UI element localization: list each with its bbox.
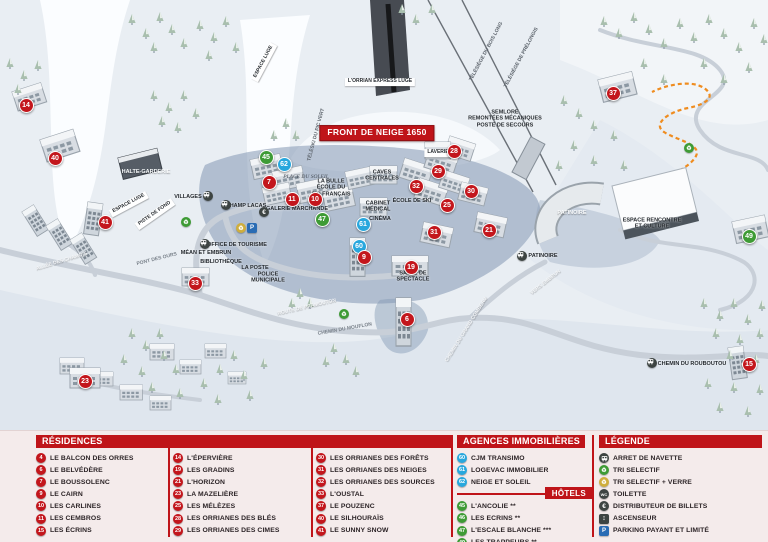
number-badge: 40 [316, 514, 326, 524]
legend-item-label: NEIGE ET SOLEIL [471, 479, 531, 486]
legend-item: 23LA MAZELIÈRE [173, 488, 279, 500]
map-marker-15: 15 [742, 357, 757, 372]
number-badge: 41 [316, 526, 326, 536]
legend-item: 30LES ORRIANES DES FORÊTS [316, 452, 435, 464]
number-badge: 47 [457, 526, 467, 536]
legend-item-label: LE CAIRN [50, 491, 83, 498]
legend-item: WCTOILETTE [599, 488, 709, 500]
legend-item-label: LE BELVÉDÈRE [50, 467, 103, 474]
legend-item: ♻TRI SELECTIF [599, 464, 709, 476]
legend-item-label: LE BOUSSOLENC [50, 479, 110, 486]
bus-icon [647, 358, 657, 368]
divider [311, 435, 313, 537]
legend-item: 19LES GRADINS [173, 464, 279, 476]
map: 1440413323745621110476132292825302131609… [0, 0, 768, 430]
legend-item: 31LES ORRIANES DES NEIGES [316, 464, 435, 476]
divider [592, 435, 594, 537]
number-badge: 61 [457, 465, 467, 475]
number-badge: 28 [173, 514, 183, 524]
map-marker-45: 45 [259, 150, 274, 165]
legend-item-label: TOILETTE [613, 491, 647, 498]
legend-item-label: L'ÉPERVIÈRE [187, 455, 233, 462]
divider [168, 435, 170, 537]
number-badge: 7 [36, 477, 46, 487]
legend-item-label: TRI SELECTIF + VERRE [613, 479, 692, 486]
legend-item-label: LES ÉCRINS [50, 527, 92, 534]
legend-item-label: LE SUNNY SNOW [330, 527, 389, 534]
legend-item-label: DISTRIBUTEUR DE BILLETS [613, 503, 707, 510]
bus-icon [599, 453, 609, 463]
legend-item: 14L'ÉPERVIÈRE [173, 452, 279, 464]
legend-item-label: LE POUZENC [330, 503, 375, 510]
toilet-icon: WC [599, 489, 609, 499]
legend-item: €DISTRIBUTEUR DE BILLETS [599, 500, 709, 512]
legend-item-label: LA MAZELIÈRE [187, 491, 238, 498]
hotels-divider: HÔTELS [457, 488, 585, 500]
legend-item-label: L'HORIZON [187, 479, 225, 486]
parking-icon: P [247, 223, 257, 233]
map-marker-32: 32 [409, 179, 424, 194]
map-marker-19: 19 [404, 260, 419, 275]
number-badge: 29 [173, 526, 183, 536]
legend-item-label: LES CARLINES [50, 503, 101, 510]
map-marker-40: 40 [48, 151, 63, 166]
map-marker-49: 49 [742, 229, 757, 244]
legend-item: 25LES MÉLÈZES [173, 500, 279, 512]
number-badge: 19 [173, 465, 183, 475]
map-marker-23: 23 [78, 374, 93, 389]
legend-item: 6LE BELVÉDÈRE [36, 464, 133, 476]
legend-item-label: L'ANCOLIE ** [471, 503, 516, 510]
legend-item-label: LOGEVAC IMMOBILIER [471, 467, 549, 474]
number-badge: 45 [457, 501, 467, 511]
map-marker-7: 7 [262, 175, 277, 190]
residences-header: RÉSIDENCES [36, 435, 451, 448]
map-marker-9: 9 [357, 250, 372, 265]
map-label: SEMLORE REMONTÉES MÉCANIQUES POSTE DE SE… [468, 110, 542, 129]
parking-icon: P [599, 526, 609, 536]
legend-item: 21L'HORIZON [173, 476, 279, 488]
legend-item-label: TRI SELECTIF [613, 467, 660, 474]
number-badge: 60 [457, 453, 467, 463]
map-label: MÉAN ET EMBRUN [181, 250, 231, 256]
agencies-list: 60CJM TRANSIMO61LOGEVAC IMMOBILIER62NEIG… [457, 452, 585, 488]
map-label: CAVES CENTRALES [365, 170, 399, 183]
legend-item-label: LE BALCON DES ORRES [50, 455, 133, 462]
number-badge: 37 [316, 501, 326, 511]
recycle-icon: ♻ [181, 217, 191, 227]
legend-item: 40LE SILHOURAÏS [316, 512, 435, 524]
legend-item: PPARKING PAYANT ET LIMITÉ [599, 525, 709, 537]
legend-item: 60CJM TRANSIMO [457, 452, 585, 464]
map-label: VILLAGES [174, 194, 202, 200]
legend-item-label: LES ORRIANES DES SOURCES [330, 479, 435, 486]
recycle-icon: ♻ [599, 465, 609, 475]
map-marker-6: 6 [400, 312, 415, 327]
map-label: PATINOIRE [528, 253, 557, 259]
map-marker-10: 10 [308, 192, 323, 207]
euro-icon: € [259, 207, 269, 217]
number-badge: 23 [173, 489, 183, 499]
legend-item: 49LES TRAPPEURS ** [457, 537, 585, 542]
map-label: CABINET MÉDICAL [365, 201, 390, 214]
number-badge: 21 [173, 477, 183, 487]
legend-item: 47L'ESCALE BLANCHE *** [457, 524, 585, 536]
legend-item: 7LE BOUSSOLENC [36, 476, 133, 488]
legend-item: 29LES ORRIANES DES CIMES [173, 525, 279, 537]
map-label: ESPACE RENCONTRE ET CULTURE [623, 218, 682, 231]
resort-map-page: 1440413323745621110476132292825302131609… [0, 0, 768, 542]
map-marker-25: 25 [440, 198, 455, 213]
legend-item: 28LES ORRIANES DES BLÉS [173, 512, 279, 524]
legend-panel: RÉSIDENCES AGENCES IMMOBILIÈRES LÉGENDE … [0, 430, 768, 542]
legend-item-label: LES ECRINS ** [471, 515, 520, 522]
bus-icon [200, 239, 210, 249]
map-marker-33: 33 [188, 276, 203, 291]
map-label: L'ORRIAN EXPRESS LUGE [345, 78, 415, 86]
map-label: POLICE MUNICIPALE [251, 272, 285, 285]
legende-list: ARRET DE NAVETTE♻TRI SELECTIF♻TRI SELECT… [599, 452, 709, 537]
number-badge: 4 [36, 453, 46, 463]
elevator-icon: ↕ [599, 514, 609, 524]
legend-item-label: CJM TRANSIMO [471, 455, 525, 462]
legend-item: 9LE CAIRN [36, 488, 133, 500]
agencies-header: AGENCES IMMOBILIÈRES [457, 435, 585, 448]
legend-item-label: L'OUSTAL [330, 491, 364, 498]
legend-item: 61LOGEVAC IMMOBILIER [457, 464, 585, 476]
map-marker-37: 37 [606, 86, 621, 101]
recycle-icon: ♻ [684, 143, 694, 153]
legend-item-label: ASCENSEUR [613, 515, 657, 522]
map-marker-29: 29 [431, 164, 446, 179]
legend-item-label: LES MÉLÈZES [187, 503, 235, 510]
legend-item-label: LES ORRIANES DES BLÉS [187, 515, 276, 522]
bus-icon [203, 191, 213, 201]
recycle-icon: ♻ [339, 309, 349, 319]
legend-item-label: L'ESCALE BLANCHE *** [471, 527, 551, 534]
euro-icon: € [599, 501, 609, 511]
legend-item-label: LES ORRIANES DES FORÊTS [330, 455, 429, 462]
bus-icon [517, 251, 527, 261]
residences-column-2: 14L'ÉPERVIÈRE19LES GRADINS21L'HORIZON23L… [173, 452, 279, 537]
legende-header: LÉGENDE [599, 435, 762, 448]
legend-item: 15LES ÉCRINS [36, 525, 133, 537]
legend-item: 37LE POUZENC [316, 500, 435, 512]
legend-item: ARRET DE NAVETTE [599, 452, 709, 464]
bus-icon [221, 200, 231, 210]
number-badge: 33 [316, 489, 326, 499]
map-label: ÉCOLE DE SKI [393, 198, 432, 204]
number-badge: 32 [316, 477, 326, 487]
legend-item: ♻TRI SELECTIF + VERRE [599, 476, 709, 488]
residences-column-3: 30LES ORRIANES DES FORÊTS31LES ORRIANES … [316, 452, 435, 537]
number-badge: 30 [316, 453, 326, 463]
legend-item: 33L'OUSTAL [316, 488, 435, 500]
residences-column-1: 4LE BALCON DES ORRES6LE BELVÉDÈRE7LE BOU… [36, 452, 133, 537]
legend-item: 4LE BALCON DES ORRES [36, 452, 133, 464]
map-label: FRONT DE NEIGE 1650 [319, 125, 434, 141]
map-marker-61: 61 [356, 217, 371, 232]
number-badge: 62 [457, 477, 467, 487]
map-label: LA POSTE [241, 265, 268, 271]
number-badge: 46 [457, 513, 467, 523]
number-badge: 25 [173, 501, 183, 511]
map-marker-41: 41 [98, 215, 113, 230]
map-label: CINÉMA [369, 216, 391, 222]
map-label: BIBLIOTHÈQUE [200, 259, 242, 265]
map-label: OFFICE DE TOURISME [207, 242, 267, 248]
map-marker-47: 47 [315, 212, 330, 227]
number-badge: 9 [36, 489, 46, 499]
legend-item: 46LES ECRINS ** [457, 512, 585, 524]
number-badge: 6 [36, 465, 46, 475]
legend-item-label: LE SILHOURAÏS [330, 515, 384, 522]
map-marker-14: 14 [19, 98, 34, 113]
map-marker-28: 28 [447, 144, 462, 159]
hotels-list: 45L'ANCOLIE **46LES ECRINS **47L'ESCALE … [457, 500, 585, 542]
legend-item-label: LES GRADINS [187, 467, 235, 474]
number-badge: 10 [36, 501, 46, 511]
legend-item-label: LES ORRIANES DES NEIGES [330, 467, 427, 474]
number-badge: 15 [36, 526, 46, 536]
legend-item: 41LE SUNNY SNOW [316, 525, 435, 537]
number-badge: 11 [36, 514, 46, 524]
legend-item-label: ARRET DE NAVETTE [613, 455, 682, 462]
map-label: CHEMIN DU ROUBOUTOU [658, 361, 727, 367]
divider [451, 435, 453, 537]
legend-item: 32LES ORRIANES DES SOURCES [316, 476, 435, 488]
hotels-header: HÔTELS [545, 487, 593, 499]
legend-item: 45L'ANCOLIE ** [457, 500, 585, 512]
legend-item-label: PARKING PAYANT ET LIMITÉ [613, 527, 709, 534]
map-marker-62: 62 [277, 157, 292, 172]
map-marker-30: 30 [464, 184, 479, 199]
number-badge: 14 [173, 453, 183, 463]
legend-item: 10LES CARLINES [36, 500, 133, 512]
number-badge: 31 [316, 465, 326, 475]
map-label: HALTE-GARDERIE [122, 169, 171, 175]
legend-item: 11LES CEMBROS [36, 512, 133, 524]
number-badge: 49 [457, 538, 467, 542]
map-label: PATINOIRE [557, 210, 586, 216]
map-label: GALERIE MARCHANDE [266, 206, 328, 212]
map-marker-31: 31 [427, 225, 442, 240]
recycle-glass-icon: ♻ [236, 223, 246, 233]
legend-item: ↕ASCENSEUR [599, 512, 709, 524]
legend-item-label: LES CEMBROS [50, 515, 101, 522]
map-marker-11: 11 [285, 192, 300, 207]
recycle-glass-icon: ♻ [599, 477, 609, 487]
legend-item-label: LES ORRIANES DES CIMES [187, 527, 279, 534]
agencies-hotels-column: 60CJM TRANSIMO61LOGEVAC IMMOBILIER62NEIG… [457, 452, 585, 542]
map-marker-21: 21 [482, 223, 497, 238]
